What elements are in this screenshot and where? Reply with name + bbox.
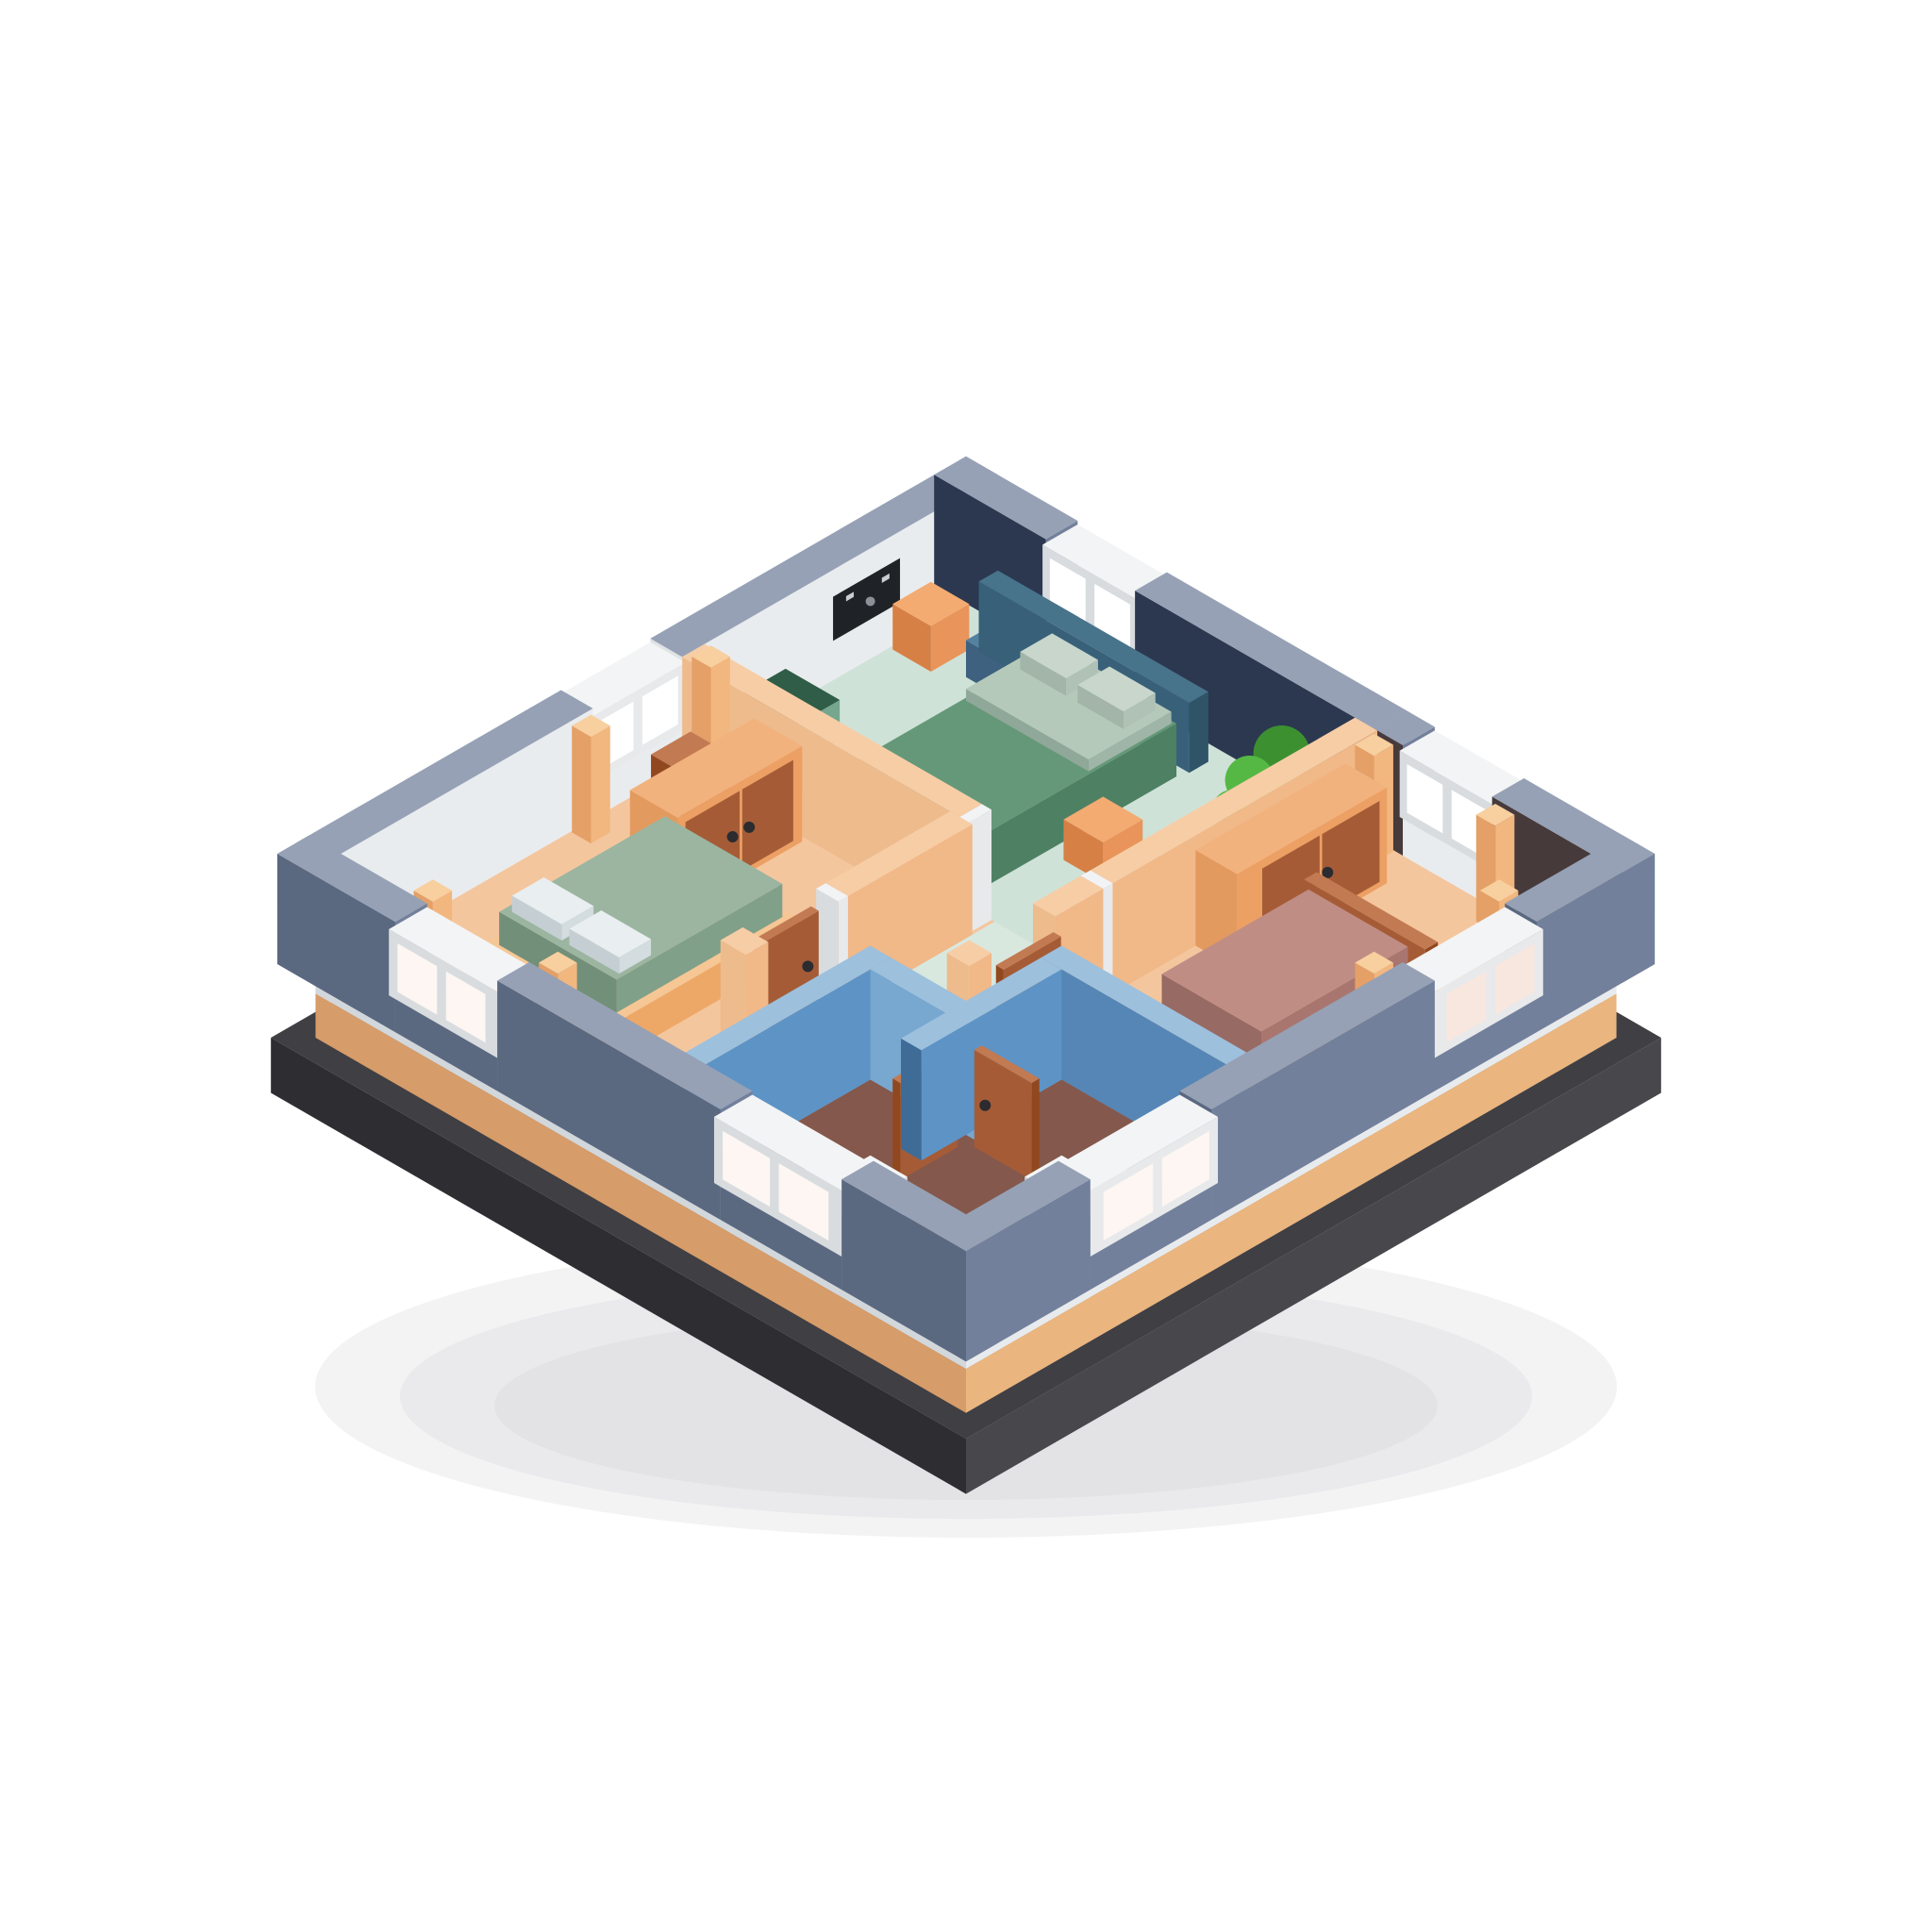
curtain-nw-2-left-face: [572, 725, 591, 843]
wall-sw-corner-right-face: [966, 1233, 998, 1362]
door-bath-right-right-face: [1032, 1078, 1040, 1180]
door-bath-right-knob: [979, 1100, 991, 1111]
tv-dot: [866, 596, 875, 606]
wardrobe-left-knob-1: [743, 822, 755, 833]
door-leftroom-knob: [802, 960, 813, 972]
isometric-apartment-floorplan: [0, 0, 1932, 1932]
render-viewport: [0, 0, 1932, 1932]
wardrobe-left-knob-2: [727, 831, 739, 842]
bath-right-wall-west-left-face: [901, 1039, 922, 1160]
jamb-white-p1-right-face: [969, 809, 991, 933]
door-bath-left-left-face: [892, 1078, 900, 1180]
master-headboard-right-face: [1190, 691, 1208, 773]
curtain-nw-2-right-face: [591, 725, 610, 843]
